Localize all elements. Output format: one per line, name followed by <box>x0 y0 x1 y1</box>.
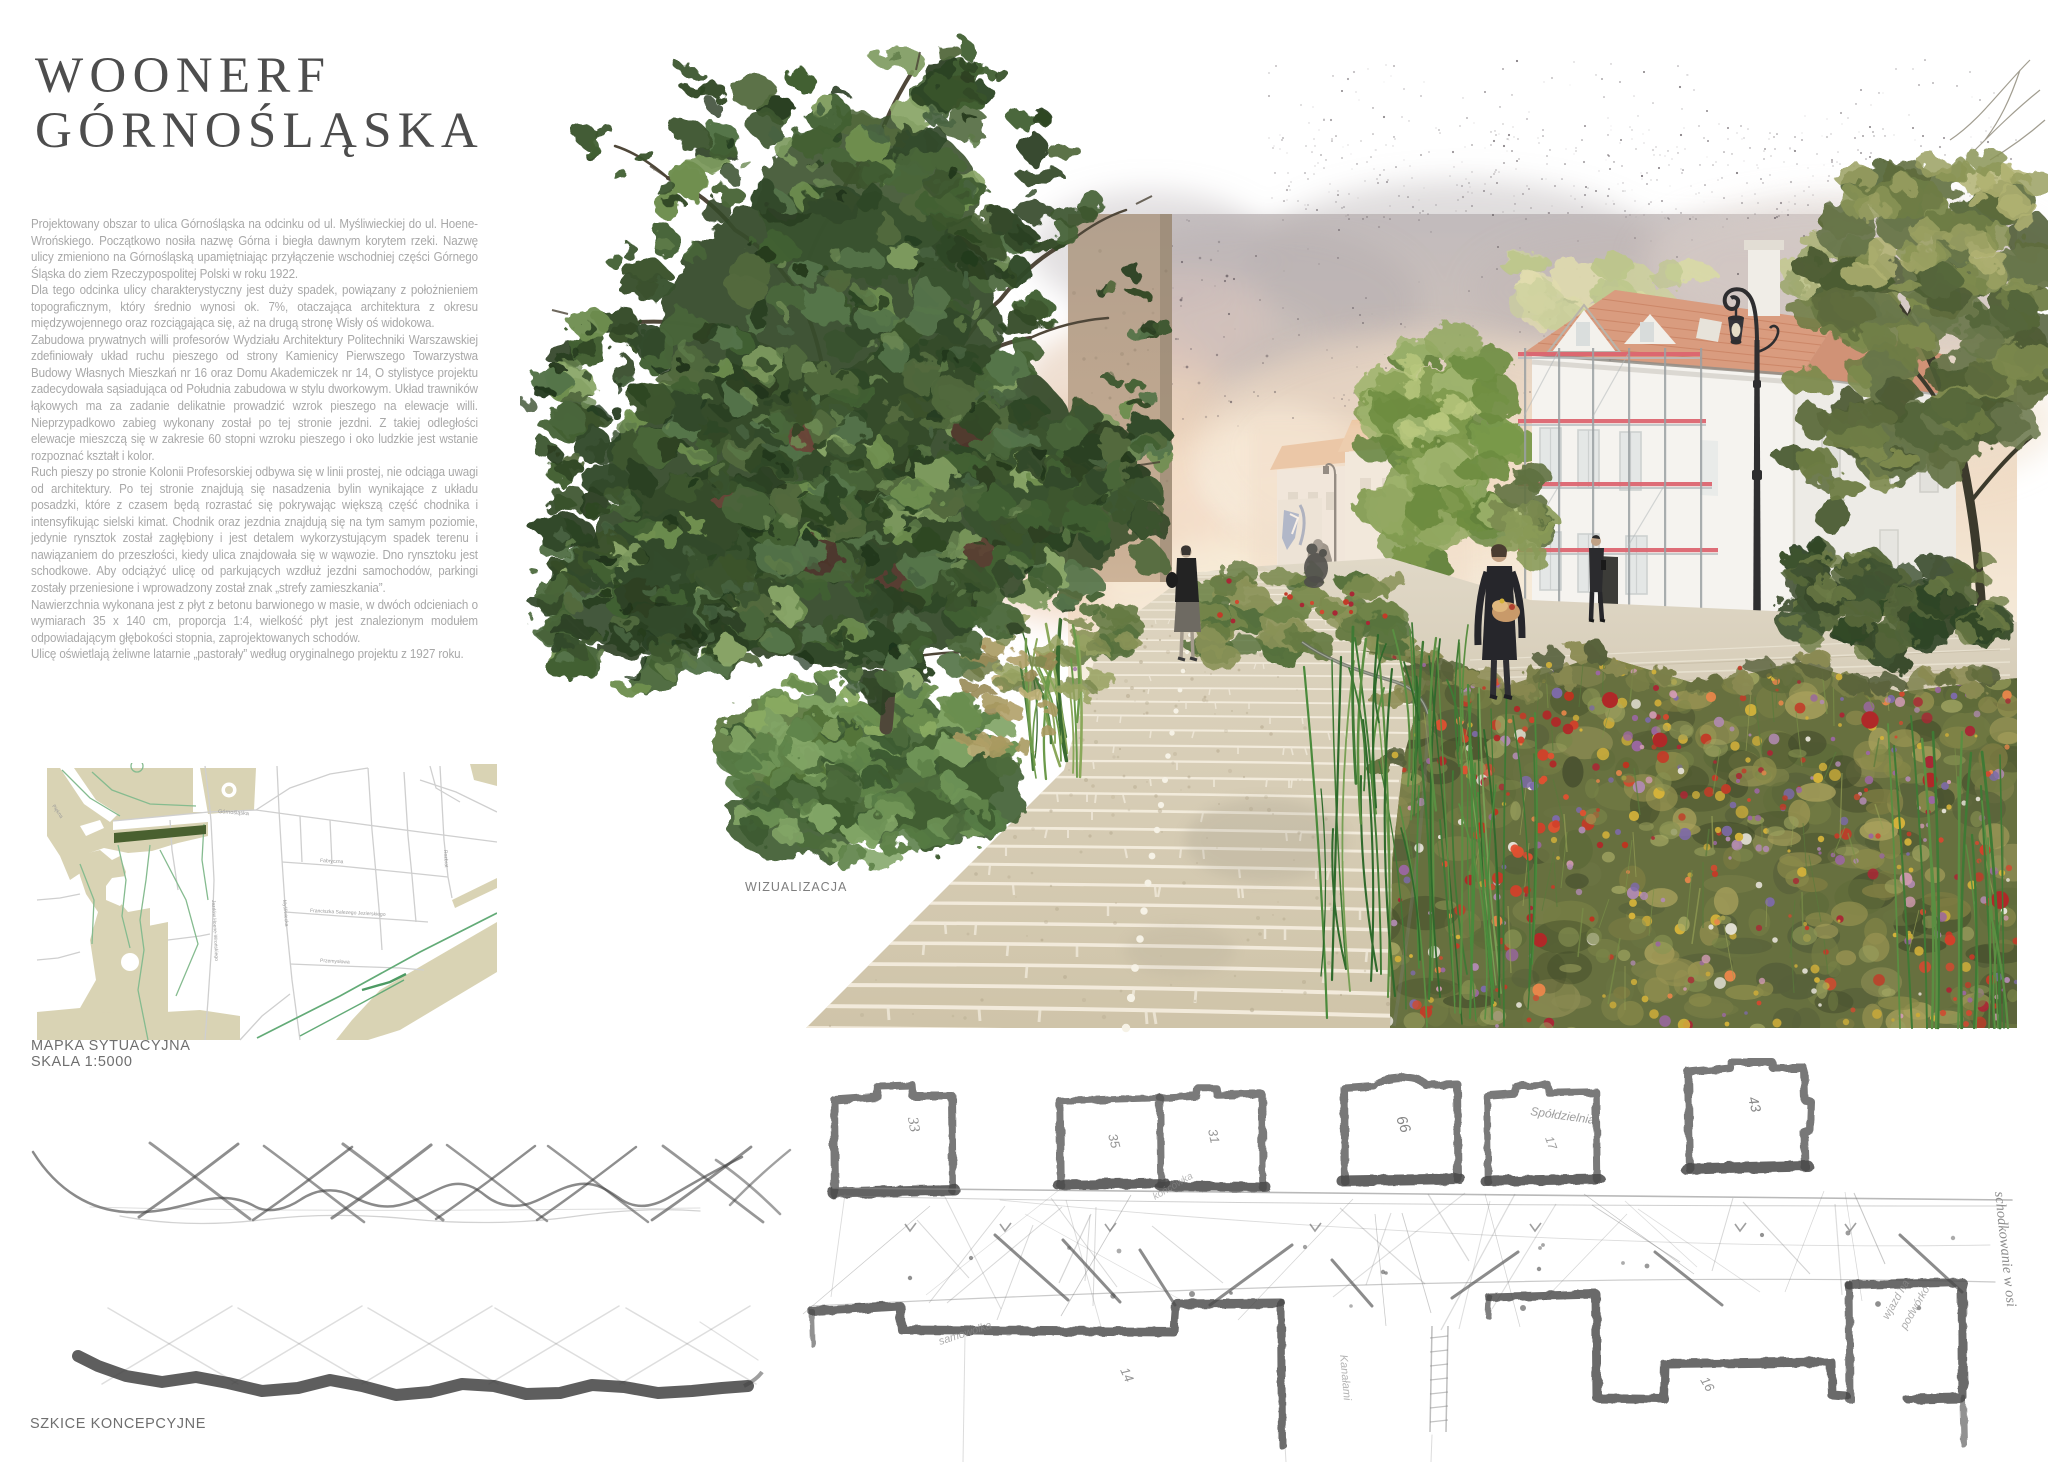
svg-text:35: 35 <box>1105 1132 1123 1151</box>
svg-text:31: 31 <box>1205 1128 1223 1145</box>
svg-text:Kanałami: Kanałami <box>1337 1354 1353 1401</box>
svg-text:14: 14 <box>1117 1365 1137 1384</box>
svg-text:Przemysłowa: Przemysłowa <box>320 958 350 966</box>
svg-text:33: 33 <box>904 1115 923 1134</box>
svg-text:Fabryczna: Fabryczna <box>320 858 344 865</box>
svg-text:Rozbrat: Rozbrat <box>442 850 449 868</box>
svg-text:Myśliwiecka: Myśliwiecka <box>281 900 289 927</box>
svg-text:66: 66 <box>1392 1114 1414 1136</box>
svg-text:16: 16 <box>1697 1374 1718 1395</box>
svg-text:schodkowanie w osi: schodkowanie w osi <box>1991 1191 2019 1308</box>
svg-text:17: 17 <box>1542 1134 1560 1153</box>
svg-text:Górnośląska: Górnośląska <box>218 809 250 817</box>
svg-text:Spółdzielnia: Spółdzielnia <box>1530 1104 1596 1127</box>
svg-text:43: 43 <box>1745 1095 1765 1114</box>
